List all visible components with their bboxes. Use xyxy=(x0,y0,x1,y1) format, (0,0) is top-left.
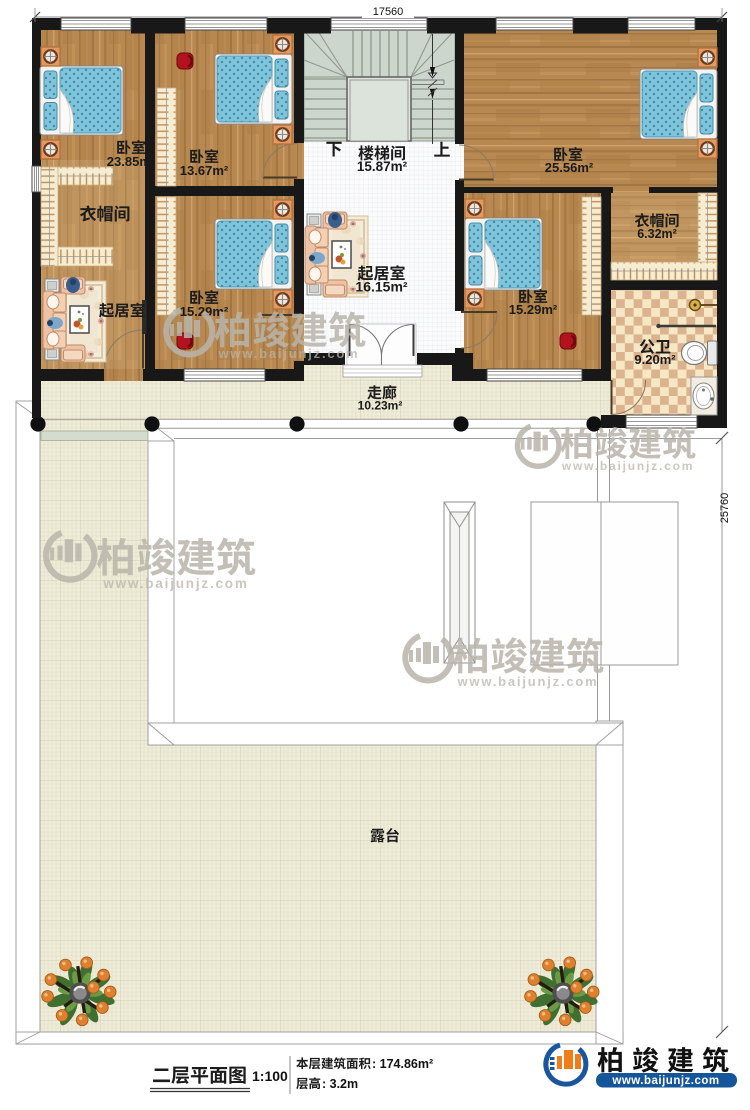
svg-text:6.32m²: 6.32m² xyxy=(637,227,677,241)
svg-text:17560: 17560 xyxy=(373,6,404,18)
svg-text:1:100: 1:100 xyxy=(252,1068,288,1084)
svg-text:www.baijunjz.com: www.baijunjz.com xyxy=(218,346,360,361)
svg-text:16.15m²: 16.15m² xyxy=(355,279,407,295)
svg-text:9.20m²: 9.20m² xyxy=(634,352,676,367)
svg-text:10.23m²: 10.23m² xyxy=(358,399,403,413)
svg-text:: 174.86m²: : 174.86m² xyxy=(372,1057,433,1071)
svg-text:www.baijunjz.com: www.baijunjz.com xyxy=(611,1075,719,1087)
svg-text:15.87m²: 15.87m² xyxy=(357,159,408,174)
svg-text:23.85m²: 23.85m² xyxy=(107,154,156,169)
svg-text:13.67m²: 13.67m² xyxy=(180,163,229,178)
svg-text:www.baijunjz.com: www.baijunjz.com xyxy=(102,576,248,591)
svg-text:: 3.2m: : 3.2m xyxy=(322,1077,358,1091)
svg-text:www.baijunjz.com: www.baijunjz.com xyxy=(561,459,694,473)
svg-text:25760: 25760 xyxy=(719,493,731,524)
svg-text:www.baijunjz.com: www.baijunjz.com xyxy=(457,674,599,689)
svg-text:25.56m²: 25.56m² xyxy=(545,160,594,175)
svg-text:15.29m²: 15.29m² xyxy=(509,302,558,317)
